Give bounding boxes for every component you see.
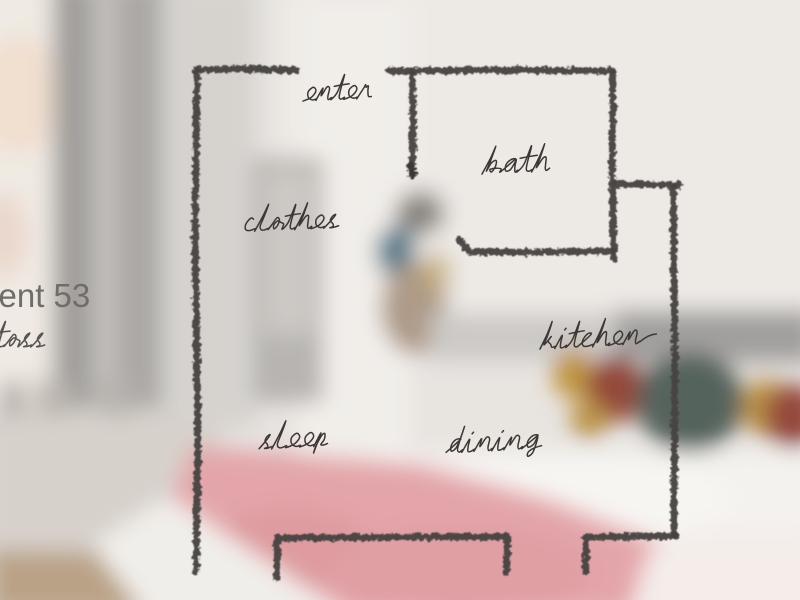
svg-text:ment 53: ment 53 bbox=[0, 277, 90, 314]
